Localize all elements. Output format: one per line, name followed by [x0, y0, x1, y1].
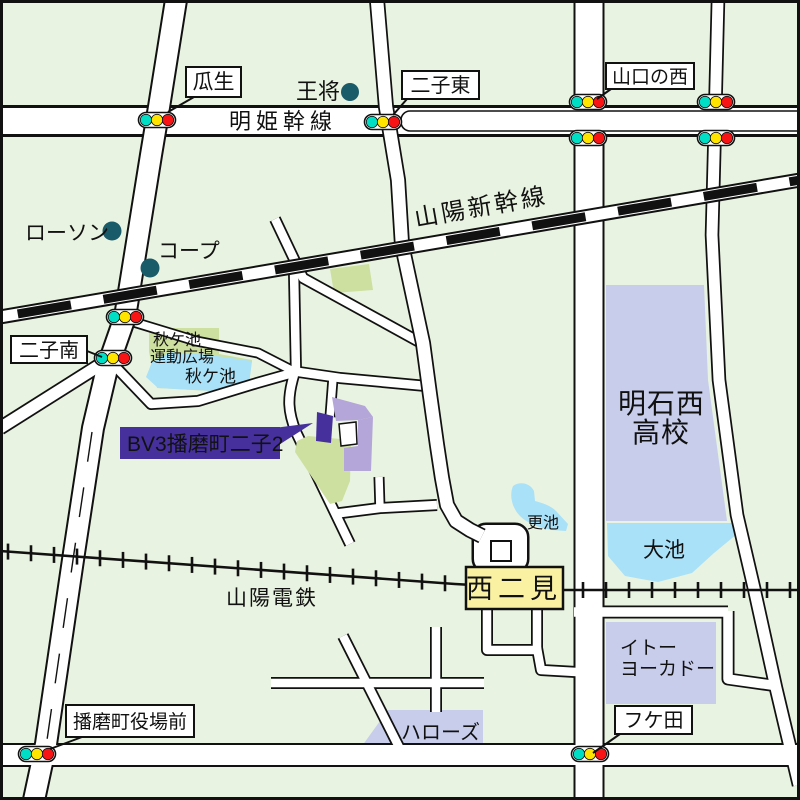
signal-lamp	[366, 116, 377, 127]
signal-lamp	[151, 114, 162, 125]
east-crossing-south-signal	[698, 131, 735, 146]
signal-lamp	[582, 96, 593, 107]
signal-lamp	[96, 352, 107, 363]
futago-higashi-label: 二子東	[411, 74, 471, 97]
signal-lamp	[130, 311, 141, 322]
ito-yokado-label-line2: ヨーカドー	[620, 659, 715, 680]
osho-label: 王将	[296, 79, 340, 104]
oike-pond-label: 大池	[643, 539, 685, 562]
signal-lamp	[20, 748, 31, 759]
park-label-line1: 秋ケ池	[153, 331, 201, 349]
signal-lamp	[140, 114, 151, 125]
highway-inner-carriageway	[401, 111, 800, 131]
meiki-kansen-label: 明姫幹線	[229, 109, 337, 134]
road	[379, 477, 380, 509]
station-label: 西二見	[466, 574, 562, 604]
uryu-signal	[139, 113, 176, 128]
yakuba-mae-label: 播磨町役場前	[73, 711, 187, 733]
lawson-label: ローソン	[25, 222, 109, 245]
signal-lamp	[582, 132, 593, 143]
signal-lamp	[31, 748, 42, 759]
signal-lamp	[377, 116, 388, 127]
sanyo-dentetsu-label: 山陽電鉄	[226, 587, 318, 610]
futago-higashi-signal	[365, 115, 402, 130]
school-label-line1: 明石西	[618, 388, 705, 419]
signal-lamp	[119, 311, 130, 322]
hellos-label: ハローズ	[401, 721, 480, 744]
signal-lamp	[42, 748, 53, 759]
ito-yokado-label-line1: イトー	[620, 638, 677, 659]
station-plaza-building	[491, 541, 511, 561]
coop-dot	[141, 259, 160, 278]
signal-lamp	[699, 96, 710, 107]
signal-lamp	[108, 311, 119, 322]
small-green-patch	[330, 264, 373, 293]
signal-lamp	[710, 96, 721, 107]
yamaguchi-no-nishi-label: 山口の西	[612, 66, 688, 88]
store-area-map: BV3播磨町二子2 西二見 瓜生 二子東 山口の西 二子南 播磨町役場前 フケ田	[0, 0, 800, 800]
signal-lamp	[699, 132, 710, 143]
site-label: BV3播磨町二子2	[127, 433, 283, 456]
site-courtyard	[339, 422, 357, 446]
uryu-label: 瓜生	[193, 71, 235, 94]
futago-minami-signal	[95, 351, 132, 366]
sarike-pond-label: 更池	[527, 514, 559, 532]
school-label-line2: 高校	[632, 417, 690, 448]
signal-lamp	[573, 748, 584, 759]
signal-lamp	[118, 352, 129, 363]
signal-lamp	[571, 96, 582, 107]
coop-label: コープ	[158, 240, 220, 263]
park-label-line2: 運動広場	[150, 348, 214, 366]
site-marker-bar	[316, 412, 333, 443]
signal-lamp	[388, 116, 399, 127]
east-crossing-north-signal	[698, 95, 735, 110]
map-canvas: BV3播磨町二子2 西二見 瓜生 二子東 山口の西 二子南 播磨町役場前 フケ田	[0, 0, 800, 800]
signal-lamp	[107, 352, 118, 363]
signal-lamp	[571, 132, 582, 143]
akigaike-pond-label: 秋ケ池	[185, 367, 236, 386]
signal-lamp	[710, 132, 721, 143]
osho-dot	[341, 83, 359, 101]
signal-lamp	[721, 96, 732, 107]
signal-lamp	[162, 114, 173, 125]
futago-minami-label: 二子南	[19, 339, 79, 362]
signal-lamp	[584, 748, 595, 759]
road	[294, 271, 296, 372]
fukeda-signal	[572, 747, 609, 762]
fukeda-label: フケ田	[624, 710, 684, 732]
yamaguchi-west-south-signal	[570, 131, 607, 146]
signal-lamp	[593, 132, 604, 143]
shinkansen-crossing-signal	[107, 310, 144, 325]
signal-lamp	[721, 132, 732, 143]
nishi-futami-station: 西二見	[466, 567, 563, 609]
